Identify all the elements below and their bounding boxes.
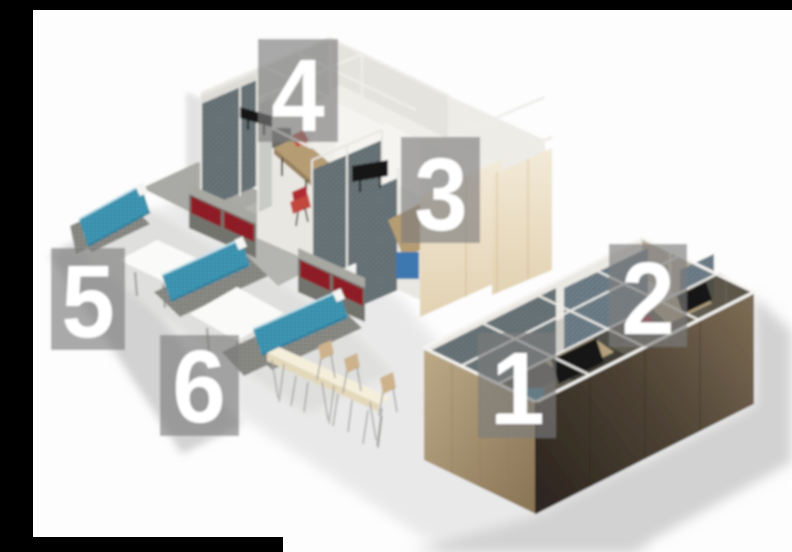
svg-text:3: 3 [414,138,467,253]
svg-text:2: 2 [621,242,674,357]
svg-text:4: 4 [271,39,324,154]
svg-text:1: 1 [491,332,544,447]
svg-text:5: 5 [61,245,114,360]
svg-text:6: 6 [172,330,225,445]
